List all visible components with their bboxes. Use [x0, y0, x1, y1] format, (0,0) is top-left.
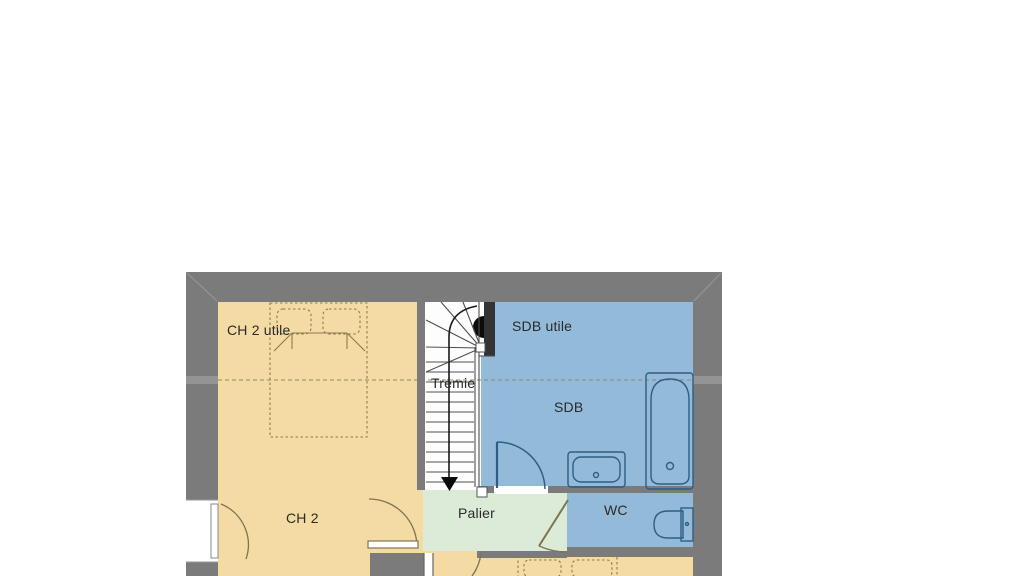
floorplan-page: CH 2 utile Trémie SDB utile SDB CH 2 Pal… [0, 0, 1024, 576]
room-sdb-floor [481, 356, 693, 486]
room-wc-floor [567, 493, 693, 547]
wall-right [693, 302, 722, 576]
ch2-palier-door-leaf [368, 541, 418, 548]
stair-newel-bottom [477, 487, 487, 497]
room-label-palier: Palier [458, 505, 495, 521]
room-label-ch2: CH 2 [286, 510, 319, 526]
wall-bottom-stub [370, 553, 425, 576]
wall-notch-left [186, 376, 218, 384]
wall-left-lower [186, 562, 218, 576]
sdb-door-opening [494, 486, 548, 494]
ch2-exterior-door-leaf [211, 504, 218, 558]
wall-top [186, 272, 722, 302]
wall-left-upper [186, 302, 218, 500]
room-label-sdb-utile: SDB utile [512, 318, 572, 334]
wall-palier-bottom [477, 551, 567, 558]
stair-newel-top [476, 343, 485, 352]
bottom-door-frame [424, 553, 433, 576]
wall-notch-right [693, 376, 722, 384]
wall-landing-dark [484, 302, 495, 356]
room-label-wc: WC [604, 502, 628, 518]
wall-wc-bottom [567, 547, 693, 557]
room-label-sdb: SDB [554, 399, 583, 415]
wall-stair-left [417, 302, 425, 490]
room-label-ch2-utile: CH 2 utile [227, 322, 290, 338]
room-label-tremie: Trémie [431, 375, 475, 391]
floorplan-drawing: CH 2 utile Trémie SDB utile SDB CH 2 Pal… [0, 0, 1024, 576]
room-palier-floor [423, 490, 567, 551]
